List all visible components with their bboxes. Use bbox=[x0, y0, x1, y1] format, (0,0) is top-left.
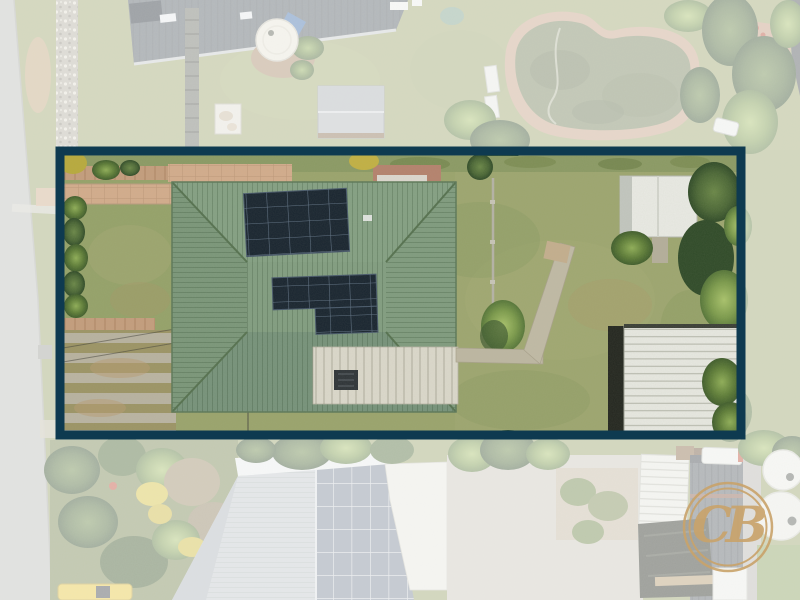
watermark-initials: CB bbox=[692, 495, 766, 554]
aerial-photo: CB bbox=[0, 0, 800, 600]
